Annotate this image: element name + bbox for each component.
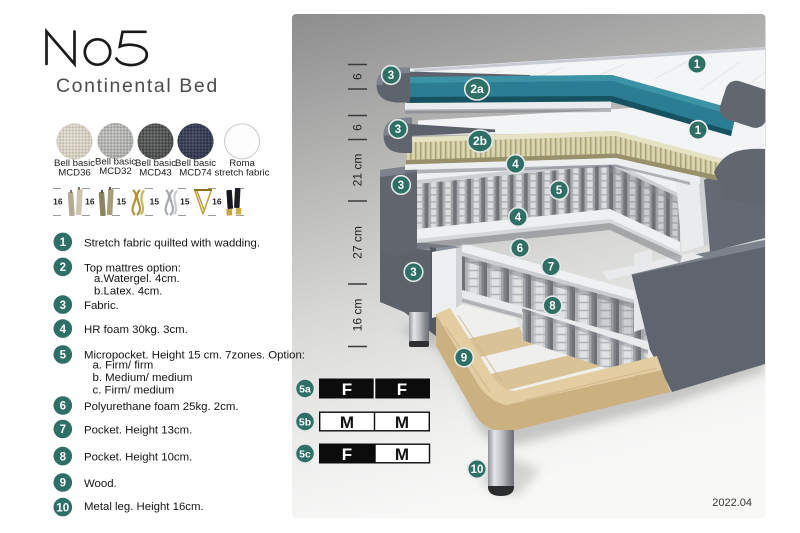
- svg-text:M: M: [395, 413, 409, 432]
- svg-text:5a: 5a: [299, 384, 311, 396]
- svg-text:6: 6: [60, 401, 66, 413]
- svg-text:3: 3: [398, 180, 404, 192]
- svg-text:a. Firm/ firm: a. Firm/ firm: [93, 360, 154, 372]
- svg-text:4: 4: [60, 324, 67, 336]
- svg-text:Continental Bed: Continental Bed: [56, 75, 219, 97]
- svg-text:5b: 5b: [299, 417, 311, 429]
- svg-text:HR foam 30kg. 3cm.: HR foam 30kg. 3cm.: [84, 324, 188, 336]
- svg-text:7: 7: [60, 424, 66, 436]
- svg-text:1: 1: [694, 59, 701, 71]
- svg-text:2a: 2a: [470, 82, 484, 96]
- svg-text:7: 7: [548, 262, 554, 274]
- svg-text:F: F: [397, 380, 407, 399]
- svg-text:M: M: [395, 445, 409, 464]
- svg-text:MCD74: MCD74: [179, 167, 212, 178]
- svg-text:4: 4: [512, 159, 519, 171]
- svg-text:Metal leg. Height 16cm.: Metal leg. Height 16cm.: [84, 501, 204, 513]
- svg-text:3: 3: [395, 124, 401, 136]
- svg-text:3: 3: [388, 70, 394, 82]
- svg-text:3: 3: [60, 300, 66, 312]
- svg-text:10: 10: [56, 502, 69, 514]
- svg-text:Fabric.: Fabric.: [84, 300, 119, 312]
- svg-text:Polyurethane foam 25kg. 2cm.: Polyurethane foam 25kg. 2cm.: [84, 401, 239, 413]
- svg-text:5: 5: [556, 185, 563, 197]
- svg-text:8: 8: [60, 451, 67, 463]
- svg-text:6: 6: [351, 73, 365, 80]
- svg-text:5c: 5c: [299, 449, 311, 461]
- svg-text:10: 10: [471, 464, 484, 476]
- svg-text:16 cm: 16 cm: [351, 299, 365, 332]
- svg-text:MCD36: MCD36: [58, 167, 91, 178]
- svg-text:1: 1: [695, 125, 702, 137]
- svg-text:15: 15: [180, 197, 190, 207]
- svg-text:15: 15: [117, 197, 127, 207]
- svg-text:3: 3: [410, 267, 416, 279]
- svg-text:4: 4: [515, 212, 522, 224]
- svg-text:21 cm: 21 cm: [351, 154, 365, 187]
- svg-text:1: 1: [60, 237, 67, 249]
- svg-text:27 cm: 27 cm: [351, 226, 365, 259]
- svg-text:8: 8: [549, 301, 556, 313]
- svg-text:Wood.: Wood.: [84, 478, 117, 490]
- svg-text:MCD32: MCD32: [99, 166, 132, 177]
- svg-text:2b: 2b: [473, 134, 487, 148]
- svg-text:MCD43: MCD43: [139, 167, 172, 178]
- svg-text:6: 6: [351, 124, 365, 131]
- svg-text:Pocket. Height 10cm.: Pocket. Height 10cm.: [84, 452, 192, 464]
- svg-text:9: 9: [60, 478, 66, 490]
- svg-text:2: 2: [60, 262, 66, 274]
- svg-text:15: 15: [150, 197, 160, 207]
- svg-text:F: F: [342, 380, 352, 399]
- svg-text:M: M: [340, 413, 354, 432]
- svg-text:b. Medium/ medium: b. Medium/ medium: [93, 372, 193, 384]
- svg-text:a.Watergel. 4cm.: a.Watergel. 4cm.: [94, 273, 180, 285]
- svg-text:Stretch fabric quilted with wa: Stretch fabric quilted with wadding.: [84, 237, 260, 249]
- svg-text:c. Firm/ medium: c. Firm/ medium: [93, 385, 175, 397]
- svg-text:Pocket. Height 13cm.: Pocket. Height 13cm.: [84, 424, 192, 436]
- svg-text:2022.04: 2022.04: [712, 497, 752, 509]
- svg-text:6: 6: [517, 243, 523, 255]
- svg-text:9: 9: [461, 353, 467, 365]
- svg-text:F: F: [342, 445, 352, 464]
- svg-text:16: 16: [212, 197, 222, 207]
- svg-text:5: 5: [60, 350, 67, 362]
- svg-text:16: 16: [53, 197, 63, 207]
- svg-text:b.Latex. 4cm.: b.Latex. 4cm.: [94, 286, 162, 298]
- svg-text:stretch fabric: stretch fabric: [215, 167, 270, 178]
- svg-text:16: 16: [85, 197, 95, 207]
